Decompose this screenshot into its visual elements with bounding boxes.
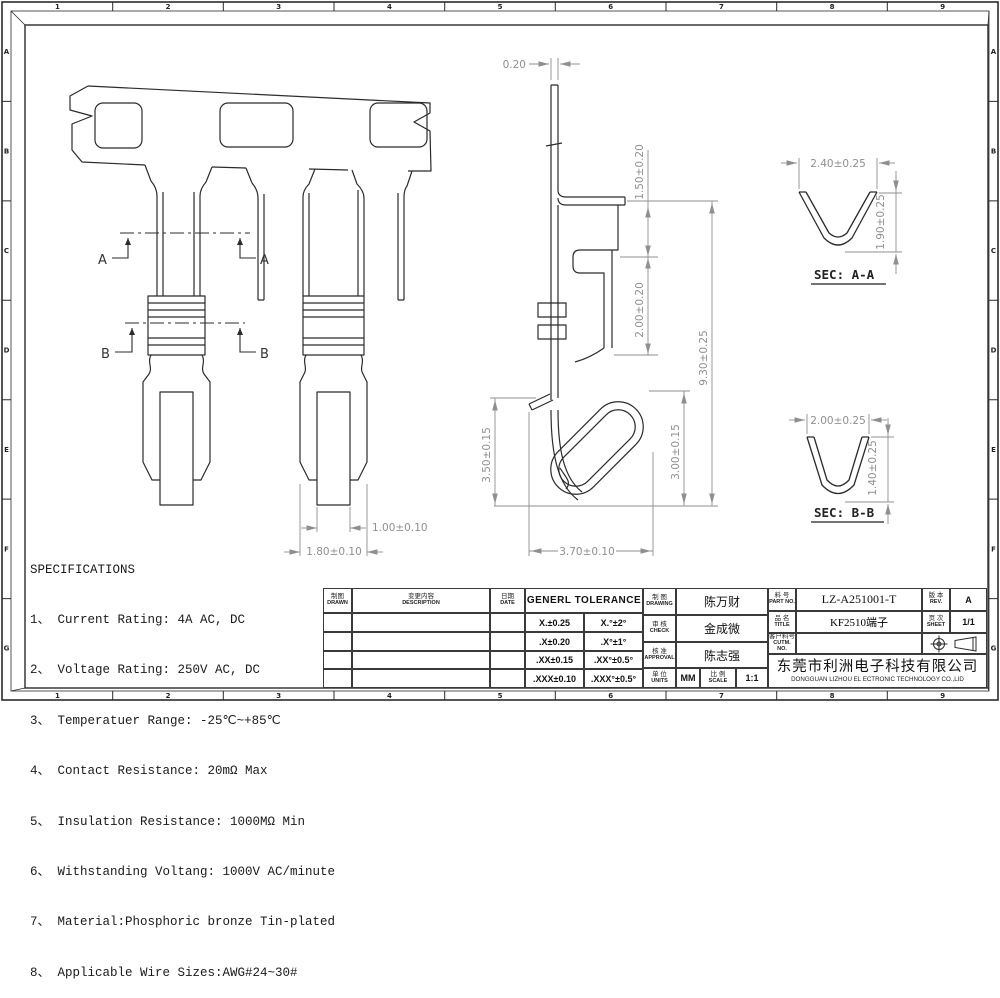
zone-col-top: 7 xyxy=(719,3,724,11)
rev-row-cell xyxy=(323,669,352,688)
rev-row-cell xyxy=(352,669,490,688)
label-en: DRAWN xyxy=(327,601,348,607)
scale-label: 比 例 SCALE xyxy=(700,668,736,688)
zone-col-top: 5 xyxy=(498,3,503,11)
label-en: CHECK xyxy=(650,629,670,635)
front-view-drawing xyxy=(70,86,431,505)
dim-secaa-height: 1.90±0.25 xyxy=(875,194,887,250)
approval-label: 核 准 APPROVAL xyxy=(643,642,676,668)
third-angle-projection-icon xyxy=(926,635,984,653)
rev-row-cell xyxy=(490,632,525,651)
label-en: CUTM. NO. xyxy=(769,641,795,653)
label-en: UNITS xyxy=(651,679,668,685)
engineering-drawing-sheet: { "border": { "cols": ["1","2","3","4","… xyxy=(0,0,1000,702)
section-b-marker-right: B xyxy=(260,347,269,362)
company-name-en: DONGGUAN LIZHOU EL ECTRONIC TECHNOLOGY C… xyxy=(791,676,964,683)
label-en: DRAWING xyxy=(646,602,673,608)
tolerance-cell: .X±0.20 xyxy=(525,632,584,651)
zone-col-top: 3 xyxy=(276,3,281,11)
specifications-block: SPECIFICATIONS 1、 Current Rating: 4A AC,… xyxy=(30,528,335,998)
zone-row-right: D xyxy=(991,346,997,354)
dim-hook-right: 3.00±0.15 xyxy=(670,424,682,480)
tolerance-header: GENERL TOLERANCE xyxy=(525,588,643,613)
zone-row-right: G xyxy=(991,645,997,653)
dim-secbb-width: 2.00±0.25 xyxy=(810,415,866,427)
section-aa-label: SEC: A-A xyxy=(814,267,875,282)
section-a-marker-right: A xyxy=(260,253,269,268)
section-bb-drawing xyxy=(807,437,869,494)
zone-col-top: 2 xyxy=(166,3,171,11)
section-cut-lines xyxy=(112,233,256,352)
dim-inner-width: 1.00±0.10 xyxy=(372,522,428,534)
zone-row-left: A xyxy=(4,48,10,56)
rev-col-date-header: 日期 DATE xyxy=(490,588,525,613)
spec-line: 2、 Voltage Rating: 250V AC, DC xyxy=(30,662,335,679)
label-en: DATE xyxy=(500,601,515,607)
product-label: 品 名 TITLE xyxy=(768,611,796,633)
drawing-name: 陈万财 xyxy=(676,588,768,615)
drawing-label: 制 图 DRAWING xyxy=(643,588,676,615)
zone-col-bottom: 9 xyxy=(940,692,945,700)
units-label: 单 位 UNITS xyxy=(643,668,676,688)
spec-line: 3、 Temperatuer Range: -25℃~+85℃ xyxy=(30,713,335,730)
rev-row-cell xyxy=(490,669,525,688)
part-no-value: LZ-A251001-T xyxy=(796,588,922,611)
tolerance-cell: .XXX°±0.5° xyxy=(584,669,643,688)
dim-hook-left: 3.50±0.15 xyxy=(481,427,493,483)
check-label: 审 核 CHECK xyxy=(643,615,676,642)
zone-col-bottom: 7 xyxy=(719,692,724,700)
customer-no-label: 客户料号 CUTM. NO. xyxy=(768,633,796,654)
zone-col-bottom: 8 xyxy=(830,692,835,700)
zone-col-top: 9 xyxy=(940,3,945,11)
approval-name: 陈志强 xyxy=(676,642,768,668)
zone-col-bottom: 5 xyxy=(498,692,503,700)
company-block: 东莞市利洲电子科技有限公司 DONGGUAN LIZHOU EL ECTRONI… xyxy=(768,654,987,688)
zone-row-left: G xyxy=(4,645,10,653)
section-aa-drawing xyxy=(799,192,877,245)
dim-step: 1.50±0.20 xyxy=(634,144,646,200)
dim-width: 3.70±0.10 xyxy=(559,546,615,558)
zone-col-bottom: 4 xyxy=(387,692,392,700)
rev-row-cell xyxy=(352,613,490,632)
spec-line: 4、 Contact Resistance: 20mΩ Max xyxy=(30,763,335,780)
section-bb-label: SEC: B-B xyxy=(814,505,875,520)
tolerance-cell: .X°±1° xyxy=(584,632,643,651)
tolerance-cell: .XXX±0.10 xyxy=(525,669,584,688)
rev-row-cell xyxy=(352,651,490,669)
product-value: KF2510端子 xyxy=(796,611,922,633)
spec-line: 5、 Insulation Resistance: 1000MΩ Min xyxy=(30,814,335,831)
dim-total: 9.30±0.25 xyxy=(698,330,710,386)
zone-row-right: B xyxy=(991,148,996,156)
label-en: SCALE xyxy=(709,679,728,685)
rev-row-cell xyxy=(490,651,525,669)
label-en: APPROVAL xyxy=(644,656,674,662)
zone-row-left: F xyxy=(4,545,9,553)
zone-col-top: 6 xyxy=(608,3,613,11)
rev-row-cell xyxy=(490,613,525,632)
zone-row-right: C xyxy=(991,247,996,255)
zone-row-left: B xyxy=(4,148,9,156)
projection-symbol-cell xyxy=(922,633,987,654)
zone-row-left: E xyxy=(4,446,9,454)
customer-no-value xyxy=(796,633,922,654)
rev-row-cell xyxy=(323,613,352,632)
units-value: MM xyxy=(676,668,700,688)
dim-secaa-width: 2.40±0.25 xyxy=(810,158,866,170)
rev-row-cell xyxy=(323,651,352,669)
label-en: DESCRIPTION xyxy=(402,601,440,607)
spec-line: 1、 Current Rating: 4A AC, DC xyxy=(30,612,335,629)
rev-value: A xyxy=(950,588,987,611)
zone-row-right: A xyxy=(991,48,997,56)
zone-col-top: 8 xyxy=(830,3,835,11)
rev-label: 版 本 REV. xyxy=(922,588,950,611)
zone-col-top: 4 xyxy=(387,3,392,11)
label-en: TITLE xyxy=(774,623,789,629)
rev-row-cell xyxy=(352,632,490,651)
tolerance-cell: .XX±0.15 xyxy=(525,651,584,669)
zone-col-bottom: 6 xyxy=(608,692,613,700)
tolerance-cell: X.°±2° xyxy=(584,613,643,632)
zone-row-right: E xyxy=(991,446,996,454)
dim-thickness: 0.20 xyxy=(503,59,526,71)
zone-row-left: C xyxy=(4,247,9,255)
spec-line: 8、 Applicable Wire Sizes:AWG#24~30# xyxy=(30,965,335,982)
label-en: REV. xyxy=(930,600,942,606)
tolerance-cell: .XX°±0.5° xyxy=(584,651,643,669)
rev-col-description-header: 变更内容 DESCRIPTION xyxy=(352,588,490,613)
zone-col-top: 1 xyxy=(55,3,60,11)
zone-row-left: D xyxy=(4,346,10,354)
label-en: SHEET xyxy=(927,623,945,629)
company-name-cn: 东莞市利洲电子科技有限公司 xyxy=(777,659,979,676)
label-en: PART NO. xyxy=(769,600,795,606)
part-no-label: 料 号 PART NO. xyxy=(768,588,796,611)
spec-line: 7、 Material:Phosphoric bronze Tin-plated xyxy=(30,914,335,931)
dim-box: 2.00±0.20 xyxy=(634,282,646,338)
rev-row-cell xyxy=(323,632,352,651)
section-a-marker-left: A xyxy=(98,253,107,268)
zone-row-right: F xyxy=(991,545,996,553)
tolerance-cell: X.±0.25 xyxy=(525,613,584,632)
dim-secbb-height: 1.40±0.25 xyxy=(867,440,879,496)
scale-value: 1:1 xyxy=(736,668,768,688)
check-name: 金成微 xyxy=(676,615,768,642)
rev-col-drawn-header: 制图 DRAWN xyxy=(323,588,352,613)
sheet-label: 页 次 SHEET xyxy=(922,611,950,633)
section-b-marker-left: B xyxy=(101,347,110,362)
spec-line: 6、 Withstanding Voltang: 1000V AC/minute xyxy=(30,864,335,881)
sheet-value: 1/1 xyxy=(950,611,987,633)
title-block: 制图 DRAWN 变更内容 DESCRIPTION 日期 DATE GENERL… xyxy=(323,588,988,688)
specifications-title: SPECIFICATIONS xyxy=(30,562,335,579)
